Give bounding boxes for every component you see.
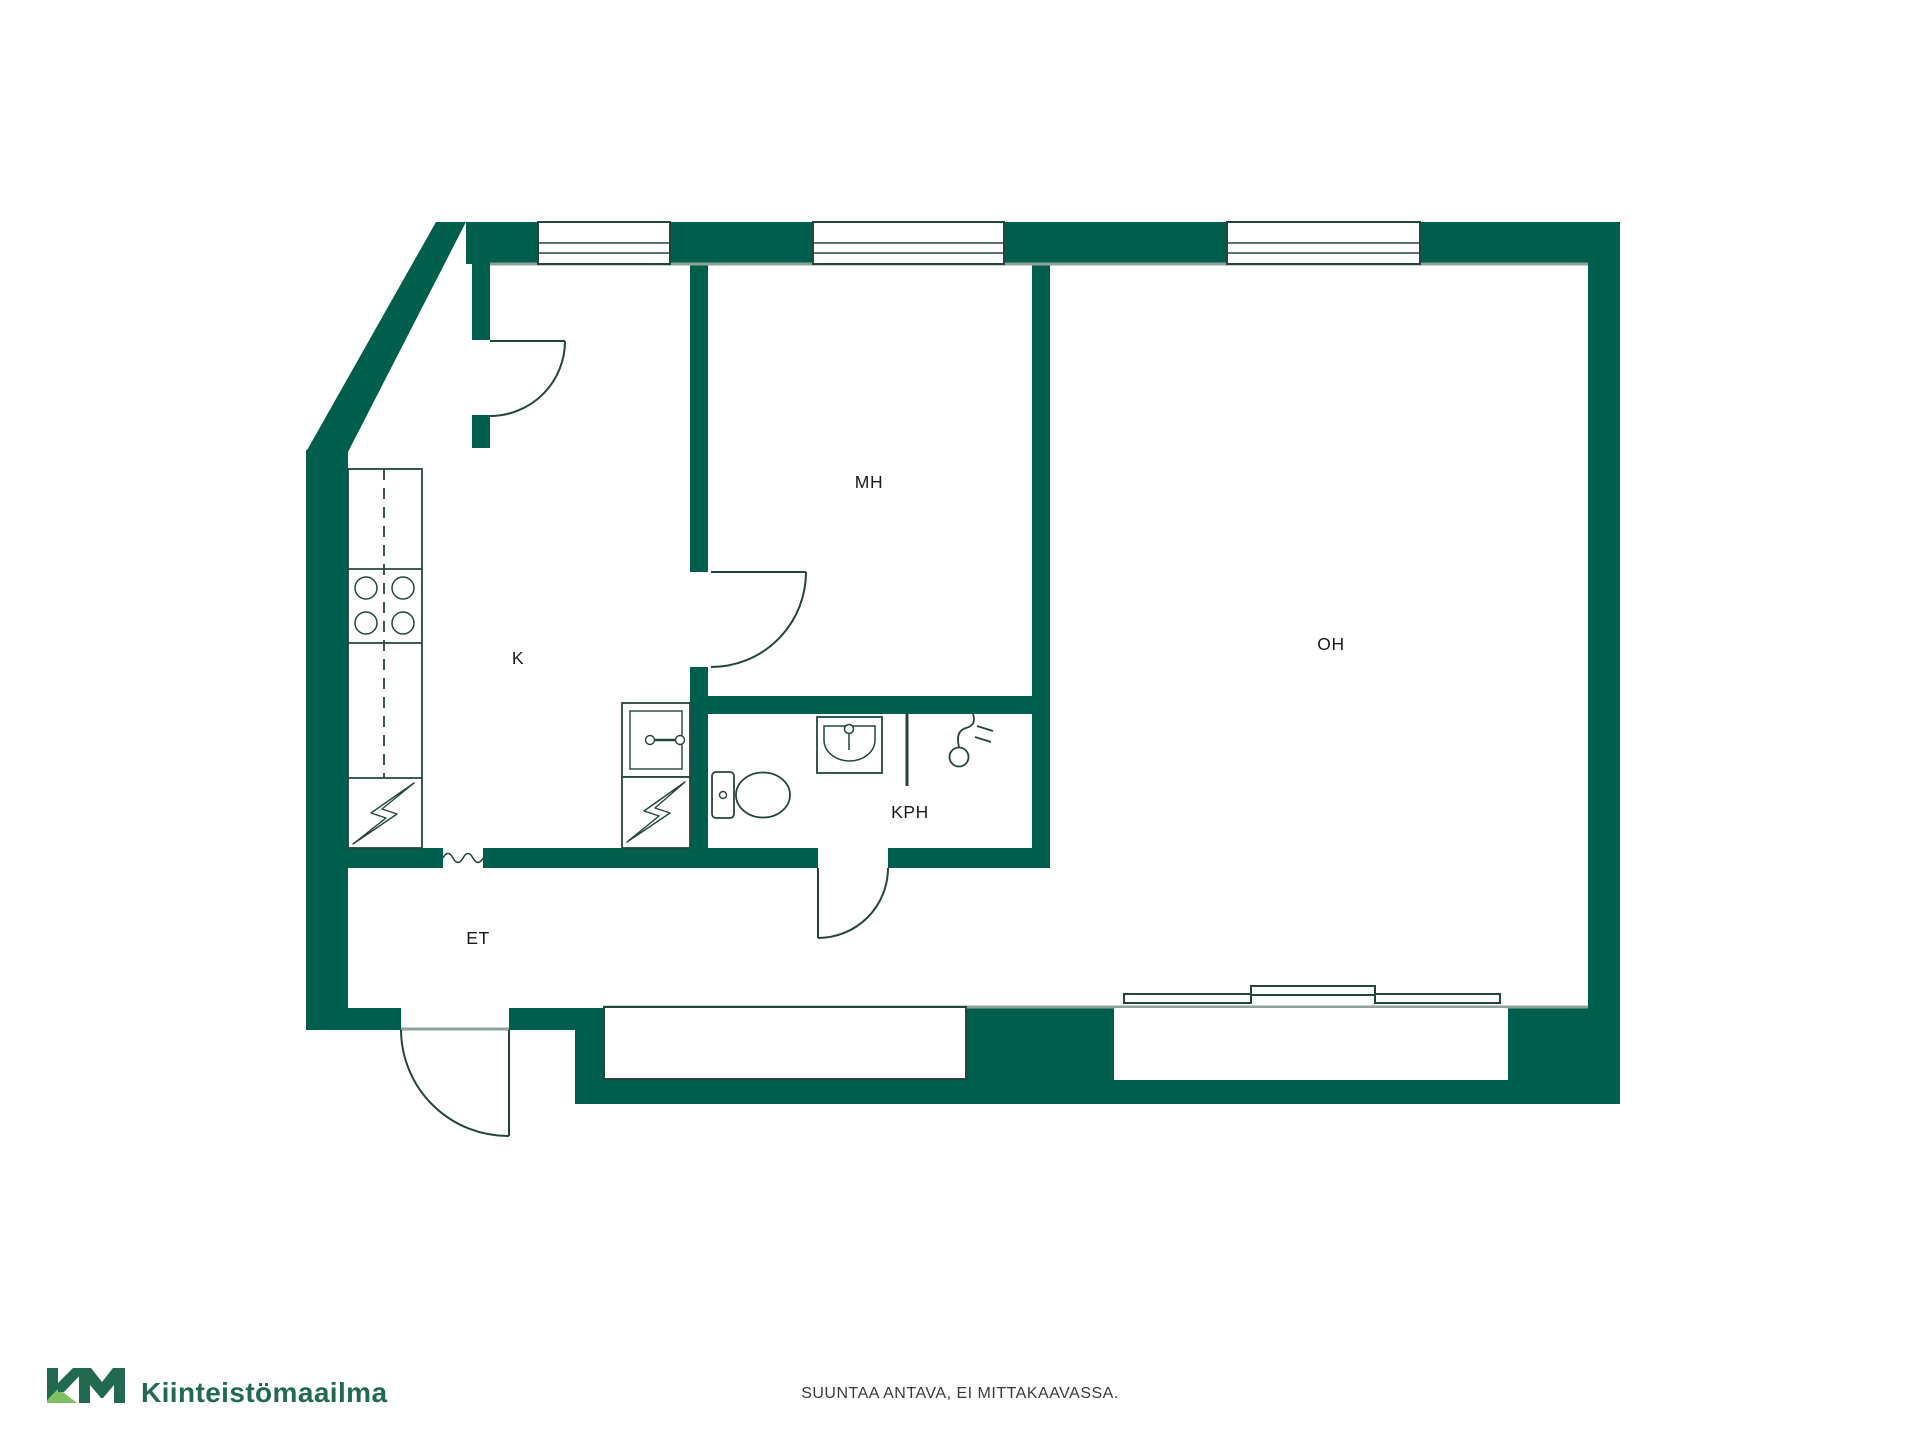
kph-fixtures <box>712 714 993 818</box>
wall-stub-upper <box>472 264 490 340</box>
room-label-kph: KPH <box>891 802 929 822</box>
wall-bottom <box>575 1080 1620 1104</box>
opening-kph-door <box>818 846 888 870</box>
door-swing-icon <box>818 868 888 938</box>
door-swing-icon <box>490 341 565 416</box>
door-swing-icon <box>401 1030 509 1136</box>
wall-bottom-right-block <box>1508 1007 1590 1081</box>
wall-mh-left-upper <box>690 264 708 572</box>
windows <box>538 222 1420 264</box>
room-label-oh: OH <box>1317 634 1344 654</box>
toilet-icon <box>712 772 790 818</box>
floor-lines <box>401 264 1588 1029</box>
km-logo-m <box>79 1368 125 1403</box>
door-swing-icon <box>711 572 806 667</box>
wall-mh-oh-divider <box>1032 264 1050 868</box>
room-label-mh: MH <box>855 472 883 492</box>
km-logo: Kiinteistömaailma <box>47 1368 387 1408</box>
wall-stub-lower <box>472 415 490 448</box>
nook-fixtures <box>622 703 690 848</box>
sliding-door-icon <box>1124 986 1500 1003</box>
wall-kph-top <box>708 696 1032 714</box>
brand-wordmark: Kiinteistömaailma <box>141 1377 387 1408</box>
wall-diagonal <box>306 222 466 452</box>
wall-structure <box>306 222 1620 1104</box>
kitchen-counter-icon <box>348 469 422 848</box>
wall-bottom-block <box>966 1007 1114 1081</box>
recess-window-bottom <box>604 1007 966 1079</box>
wall-right <box>1588 222 1620 1104</box>
wall-mh-left-lower <box>690 667 708 868</box>
recess-balcony <box>1115 1008 1507 1080</box>
shower-icon <box>950 714 994 767</box>
washbasin-icon <box>817 717 882 773</box>
room-label-k: K <box>512 648 524 668</box>
wall-et-top <box>306 848 1050 868</box>
footer-disclaimer: SUUNTAA ANTAVA, EI MITTAKAAVASSA. <box>801 1385 1119 1402</box>
floorplan-canvas: MH OH K KPH ET SUUNTAA ANTAVA, EI MITTAK… <box>0 0 1920 1440</box>
kitchen-fixtures <box>348 469 422 848</box>
wall-left <box>306 450 348 1030</box>
room-label-et: ET <box>466 928 490 948</box>
floorplan-page: MH OH K KPH ET SUUNTAA ANTAVA, EI MITTAK… <box>0 0 1920 1440</box>
